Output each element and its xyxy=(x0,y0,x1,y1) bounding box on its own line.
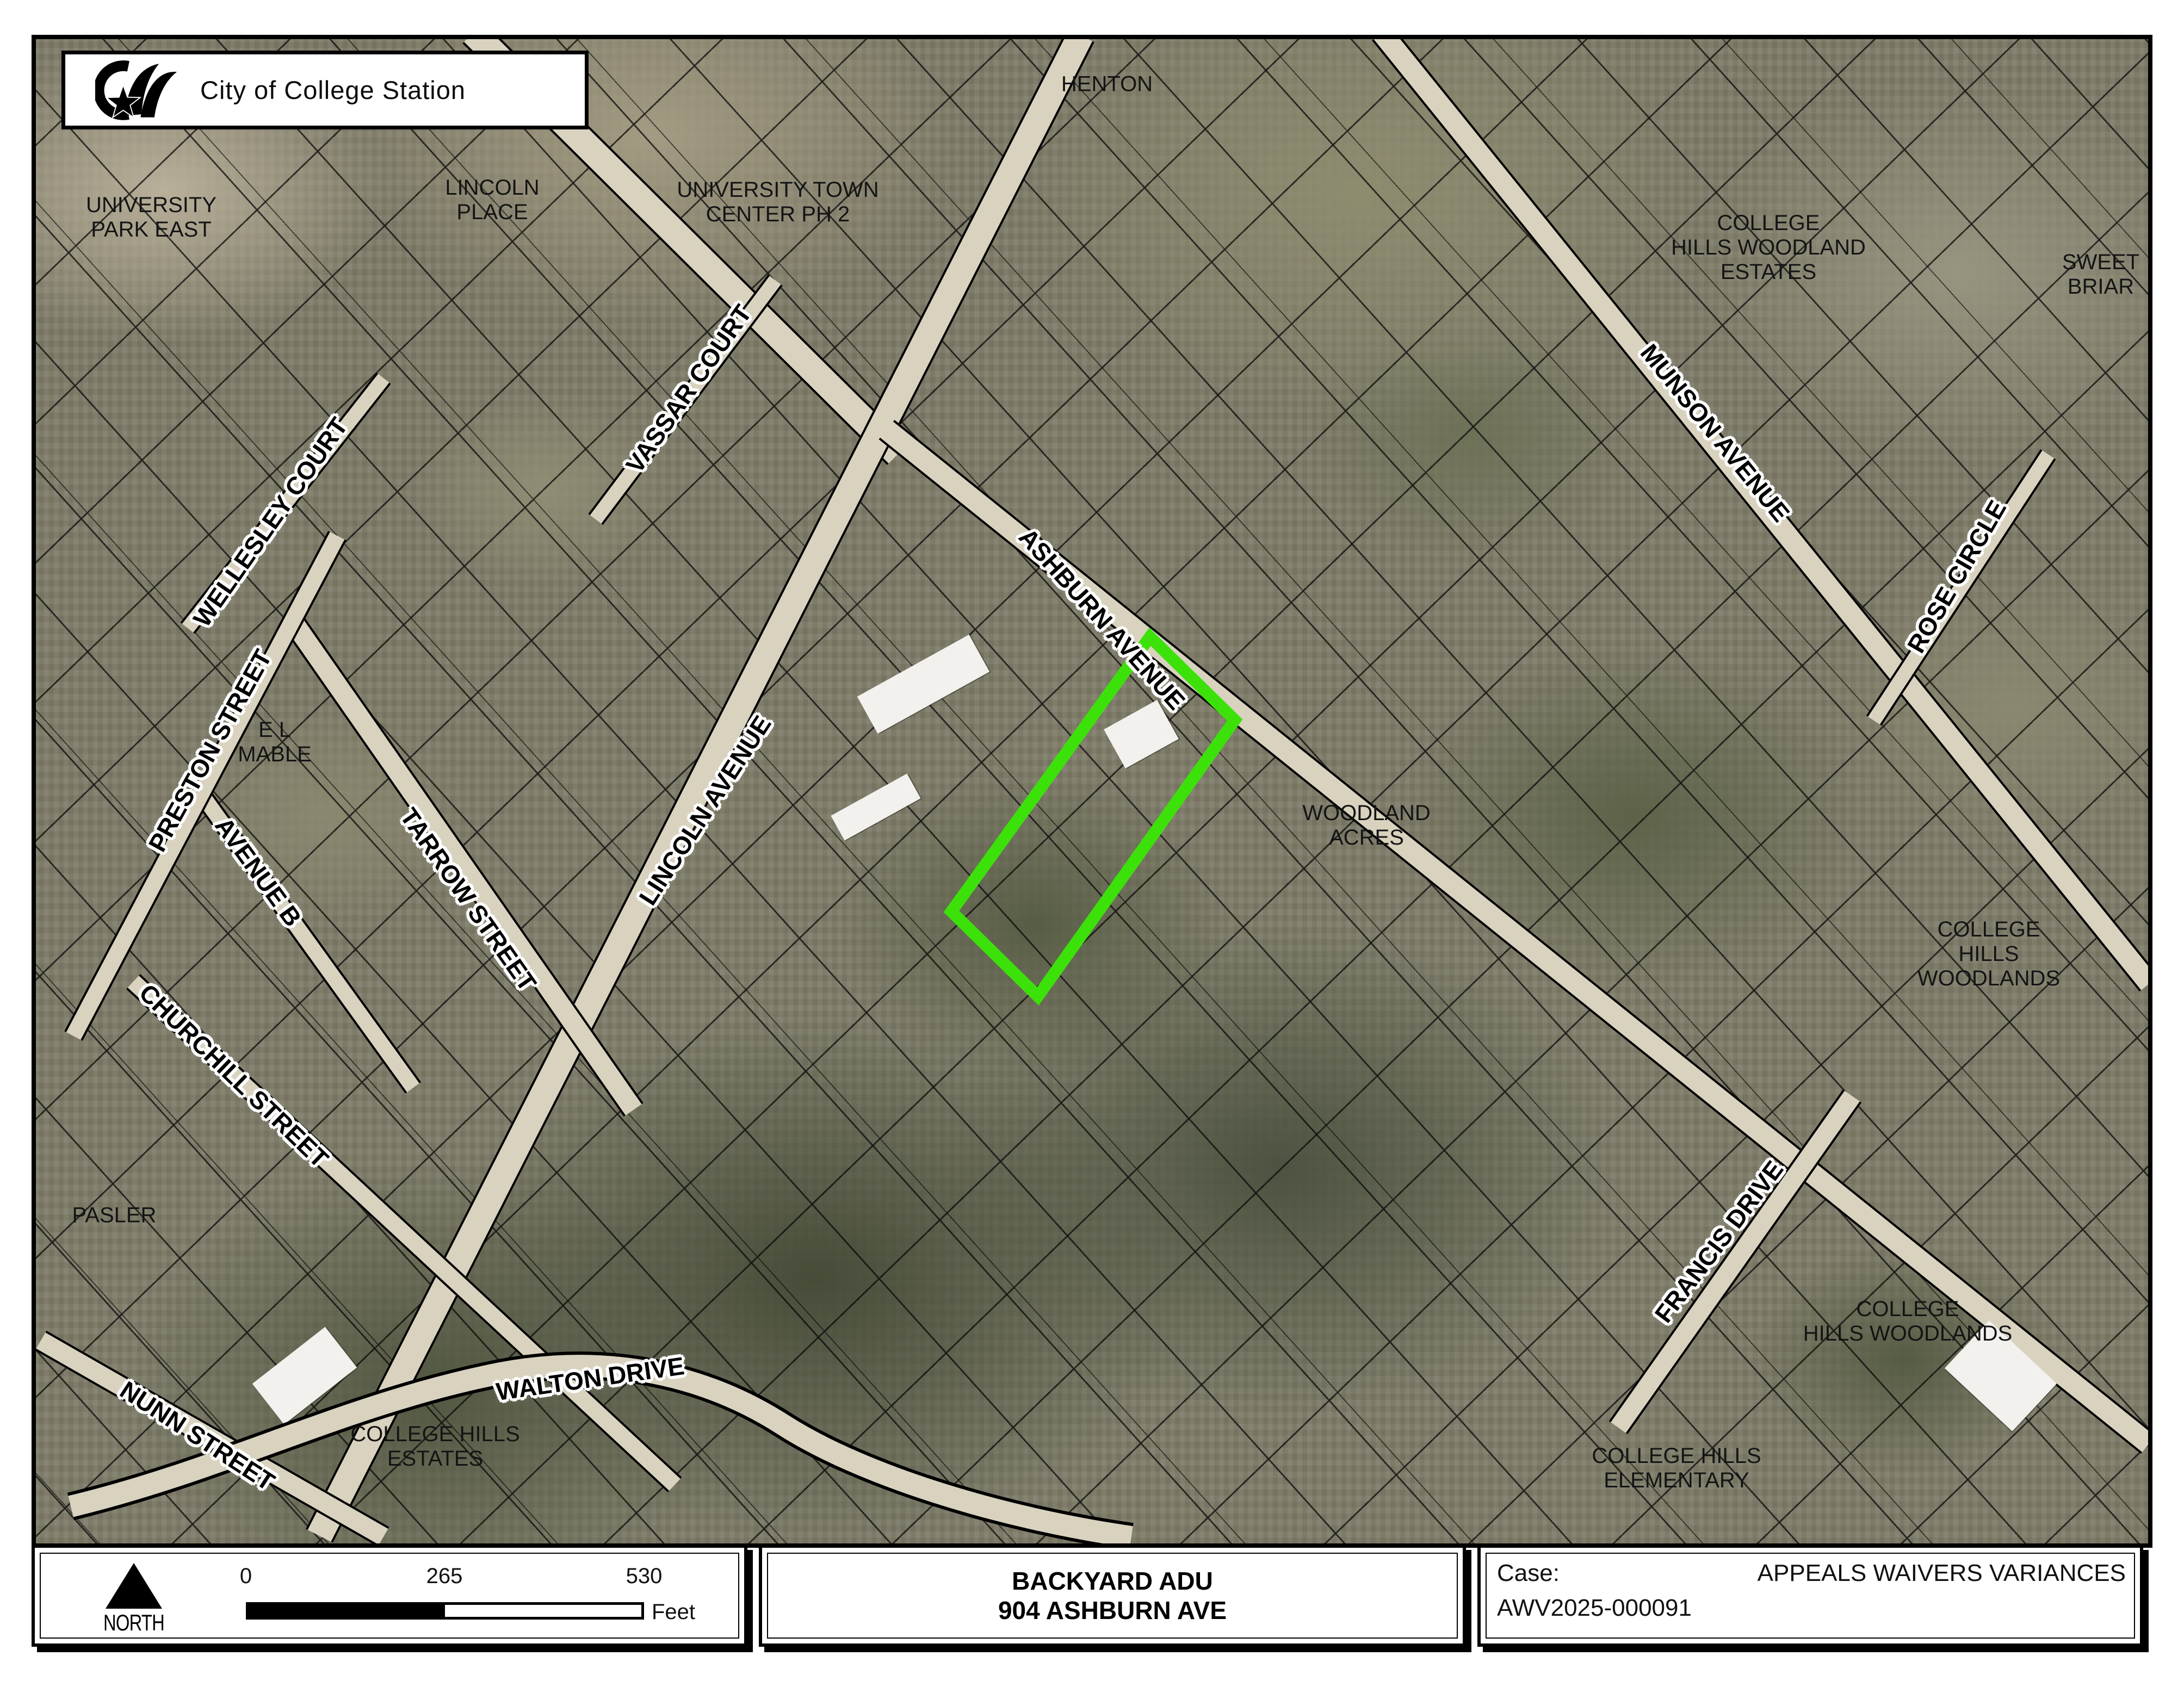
label-sweet-briar: SWEETBRIAR xyxy=(2062,250,2139,299)
case-label: Case: xyxy=(1497,1560,1560,1587)
legend-case: Case: APPEALS WAIVERS VARIANCES AWV2025-… xyxy=(1477,1545,2143,1647)
map-title-line1: BACKYARD ADU xyxy=(1012,1566,1213,1596)
case-type: APPEALS WAIVERS VARIANCES xyxy=(1758,1560,2126,1587)
case-number: AWV2025-000091 xyxy=(1497,1595,2126,1622)
label-college-hills-estates: COLLEGE HILLSESTATES xyxy=(350,1422,519,1471)
label-college-hills-woodland-estates: COLLEGEHILLS WOODLANDESTATES xyxy=(1671,211,1866,284)
scale-unit: Feet xyxy=(652,1600,695,1624)
map-area: UNIVERSITYPARK EASTLINCOLNPLACEUNIVERSIT… xyxy=(32,35,2152,1548)
city-logo-icon xyxy=(95,57,185,123)
logo-box: City of College Station xyxy=(61,51,589,129)
map-document: UNIVERSITYPARK EASTLINCOLNPLACEUNIVERSIT… xyxy=(0,0,2184,1687)
label-el-mable: E LMABLE xyxy=(238,718,312,767)
scale-bar-fill xyxy=(249,1605,445,1617)
highlighted-subject-parcel xyxy=(951,637,1235,996)
label-university-park-east: UNIVERSITYPARK EAST xyxy=(86,193,216,242)
scale-bar xyxy=(246,1602,644,1620)
scale-tick-530: 530 xyxy=(626,1564,663,1589)
label-college-hills-woodlands-east: COLLEGEHILLSWOODLANDS xyxy=(1917,917,2060,990)
label-pasler: PASLER xyxy=(72,1204,157,1228)
scale-tick-265: 265 xyxy=(426,1564,463,1589)
label-college-hills-woodlands-south: COLLEGEHILLS WOODLANDS xyxy=(1803,1297,2013,1346)
logo-title: City of College Station xyxy=(200,75,466,105)
label-henton: HENTON xyxy=(1061,72,1153,97)
legend-title: BACKYARD ADU 904 ASHBURN AVE xyxy=(759,1545,1466,1647)
label-university-town-center: UNIVERSITY TOWNCENTER PH 2 xyxy=(677,178,878,227)
legend-north-scale: NORTH 0 265 530 Feet xyxy=(32,1545,747,1647)
north-label: NORTH xyxy=(103,1610,164,1636)
label-lincoln-place: LINCOLNPLACE xyxy=(445,176,539,225)
map-title-line2: 904 ASHBURN AVE xyxy=(998,1596,1227,1625)
scale-tick-0: 0 xyxy=(240,1564,252,1589)
label-woodland-acres: WOODLANDACRES xyxy=(1302,801,1431,850)
label-college-hills-elementary: COLLEGE HILLSELEMENTARY xyxy=(1592,1444,1761,1493)
north-arrow-icon xyxy=(106,1563,162,1609)
